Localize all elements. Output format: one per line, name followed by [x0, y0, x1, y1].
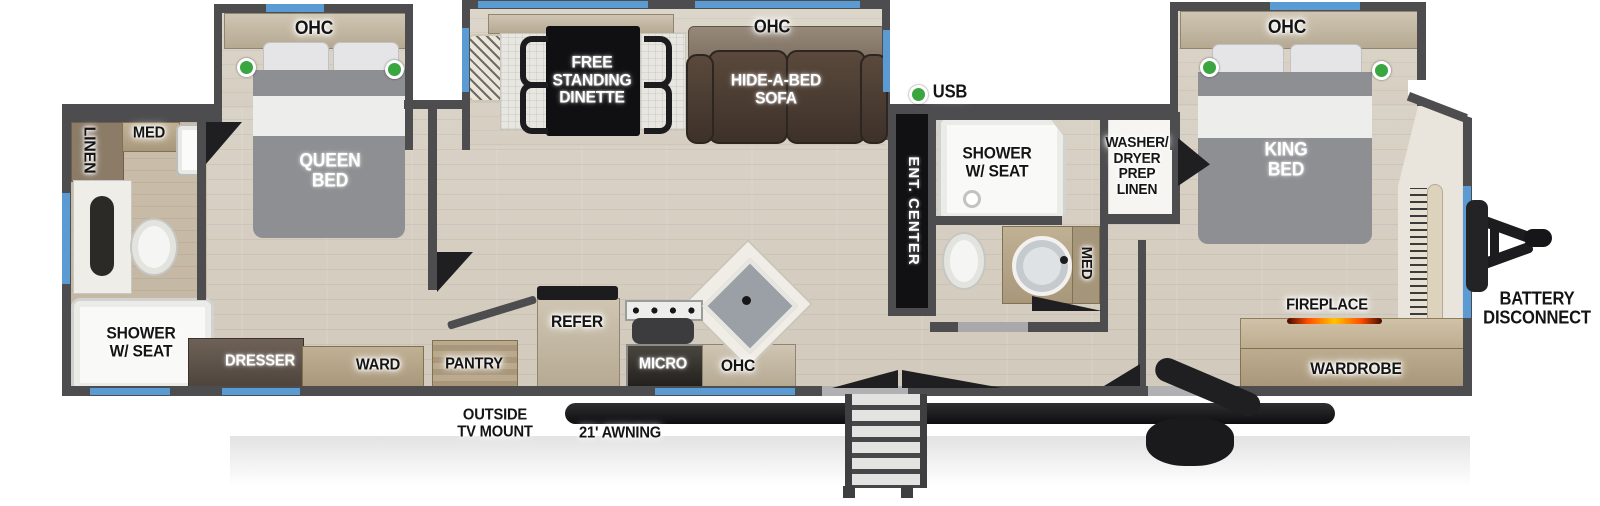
- wall-under-shower: [936, 216, 1062, 225]
- kitchen-faucet: [742, 296, 751, 305]
- mid-bath-door: [958, 322, 1028, 332]
- mid-shower-drain: [963, 190, 981, 208]
- window-rear-side: [62, 193, 70, 284]
- label-outside-tv-mount: OUTSIDE TV MOUNT: [457, 407, 532, 440]
- queen-slide-wall-left: [214, 4, 222, 122]
- floorplan-canvas: OHC LINEN MED QUEEN BED SHOWER W/ SEAT D…: [0, 0, 1600, 506]
- window-living-side-left: [462, 28, 469, 92]
- label-med-mid: MED: [1078, 247, 1094, 280]
- window-bedroom-rear: [222, 388, 300, 395]
- label-shower-rear: SHOWER W/ SEAT: [106, 324, 175, 359]
- window-rear-bath: [90, 388, 170, 395]
- queen-light-left: [237, 58, 256, 77]
- label-king-bed: KING BED: [1265, 140, 1308, 180]
- sofa-arm-left: [686, 54, 714, 144]
- window-queen-slide: [266, 4, 324, 12]
- label-med-rear: MED: [133, 126, 165, 143]
- dinette-chair-3: [644, 36, 672, 88]
- label-usb: USB: [933, 83, 967, 102]
- dinette-chair-2: [520, 82, 548, 134]
- mid-toilet: [942, 232, 986, 290]
- king-bed-sheet: [1198, 96, 1372, 138]
- label-ward: WARD: [356, 358, 400, 375]
- mid-faucet: [1060, 256, 1068, 264]
- mid-sink: [1012, 236, 1072, 296]
- label-washer-dryer: WASHER/ DRYER PREP LINEN: [1105, 135, 1168, 197]
- label-battery-disconnect: BATTERY DISCONNECT: [1483, 289, 1591, 326]
- label-ent-center: ENT. CENTER: [905, 156, 921, 265]
- label-wardrobe: WARDROBE: [1310, 360, 1402, 378]
- entry-steps-foot-left: [843, 486, 855, 498]
- rear-toilet: [130, 218, 178, 276]
- dinette-chair-1: [520, 36, 548, 88]
- wall-top-queen-gap: [404, 100, 470, 109]
- window-king-slide: [1270, 2, 1360, 10]
- label-fireplace: FIREPLACE: [1286, 298, 1368, 315]
- tongue-jack: [1466, 200, 1488, 292]
- label-awning: 21' AWNING: [579, 426, 661, 443]
- rear-counter-door: [90, 196, 114, 276]
- usb-indicator: [909, 85, 928, 104]
- label-dinette: FREE STANDING DINETTE: [552, 53, 631, 106]
- queen-light-right: [385, 60, 404, 79]
- label-refer: REFER: [551, 313, 603, 331]
- wall-bedroom-kitchen: [428, 100, 437, 290]
- king-slide-wall-left: [1170, 2, 1178, 150]
- fireplace-strip: [1287, 318, 1382, 324]
- wall-rear-bath: [197, 122, 206, 300]
- front-blinds: [1410, 188, 1427, 322]
- label-ohc-kitchen: OHC: [721, 357, 755, 375]
- folded-step-base: [1146, 418, 1234, 466]
- label-shower-mid: SHOWER W/ SEAT: [962, 144, 1031, 179]
- window-living-side-right: [883, 30, 890, 92]
- front-blind-rail: [1427, 184, 1443, 328]
- label-dresser: DRESSER: [225, 354, 295, 371]
- wall-king-bedroom: [1138, 240, 1146, 386]
- window-living-top-left: [478, 1, 648, 8]
- king-light-left: [1200, 58, 1219, 77]
- hitch-coupler: [1524, 229, 1552, 247]
- dinette-chair-4: [644, 82, 672, 134]
- stove-hood: [632, 318, 694, 344]
- queen-bed-sheet: [253, 96, 405, 136]
- refer-top: [537, 286, 618, 300]
- label-pantry: PANTRY: [445, 357, 503, 374]
- label-ohc-king: OHC: [1268, 18, 1306, 38]
- hitch-crossbar: [1490, 224, 1499, 262]
- label-linen-rear: LINEN: [80, 126, 97, 173]
- entry-steps-foot-right: [901, 486, 913, 498]
- label-ohc-living: OHC: [754, 18, 790, 37]
- label-queen-bed: QUEEN BED: [299, 151, 360, 191]
- wall-washer-bottom: [1100, 214, 1180, 224]
- entry-steps: [845, 394, 927, 488]
- queen-slide-wall-right: [405, 4, 413, 150]
- wall-top-rear: [62, 104, 222, 122]
- label-sofa: HIDE-A-BED SOFA: [731, 71, 821, 106]
- king-light-right: [1372, 61, 1391, 80]
- window-kitchen: [655, 388, 795, 395]
- label-micro: MICRO: [639, 357, 687, 374]
- window-living-top-right: [695, 1, 860, 8]
- label-ohc-queen: OHC: [295, 19, 333, 39]
